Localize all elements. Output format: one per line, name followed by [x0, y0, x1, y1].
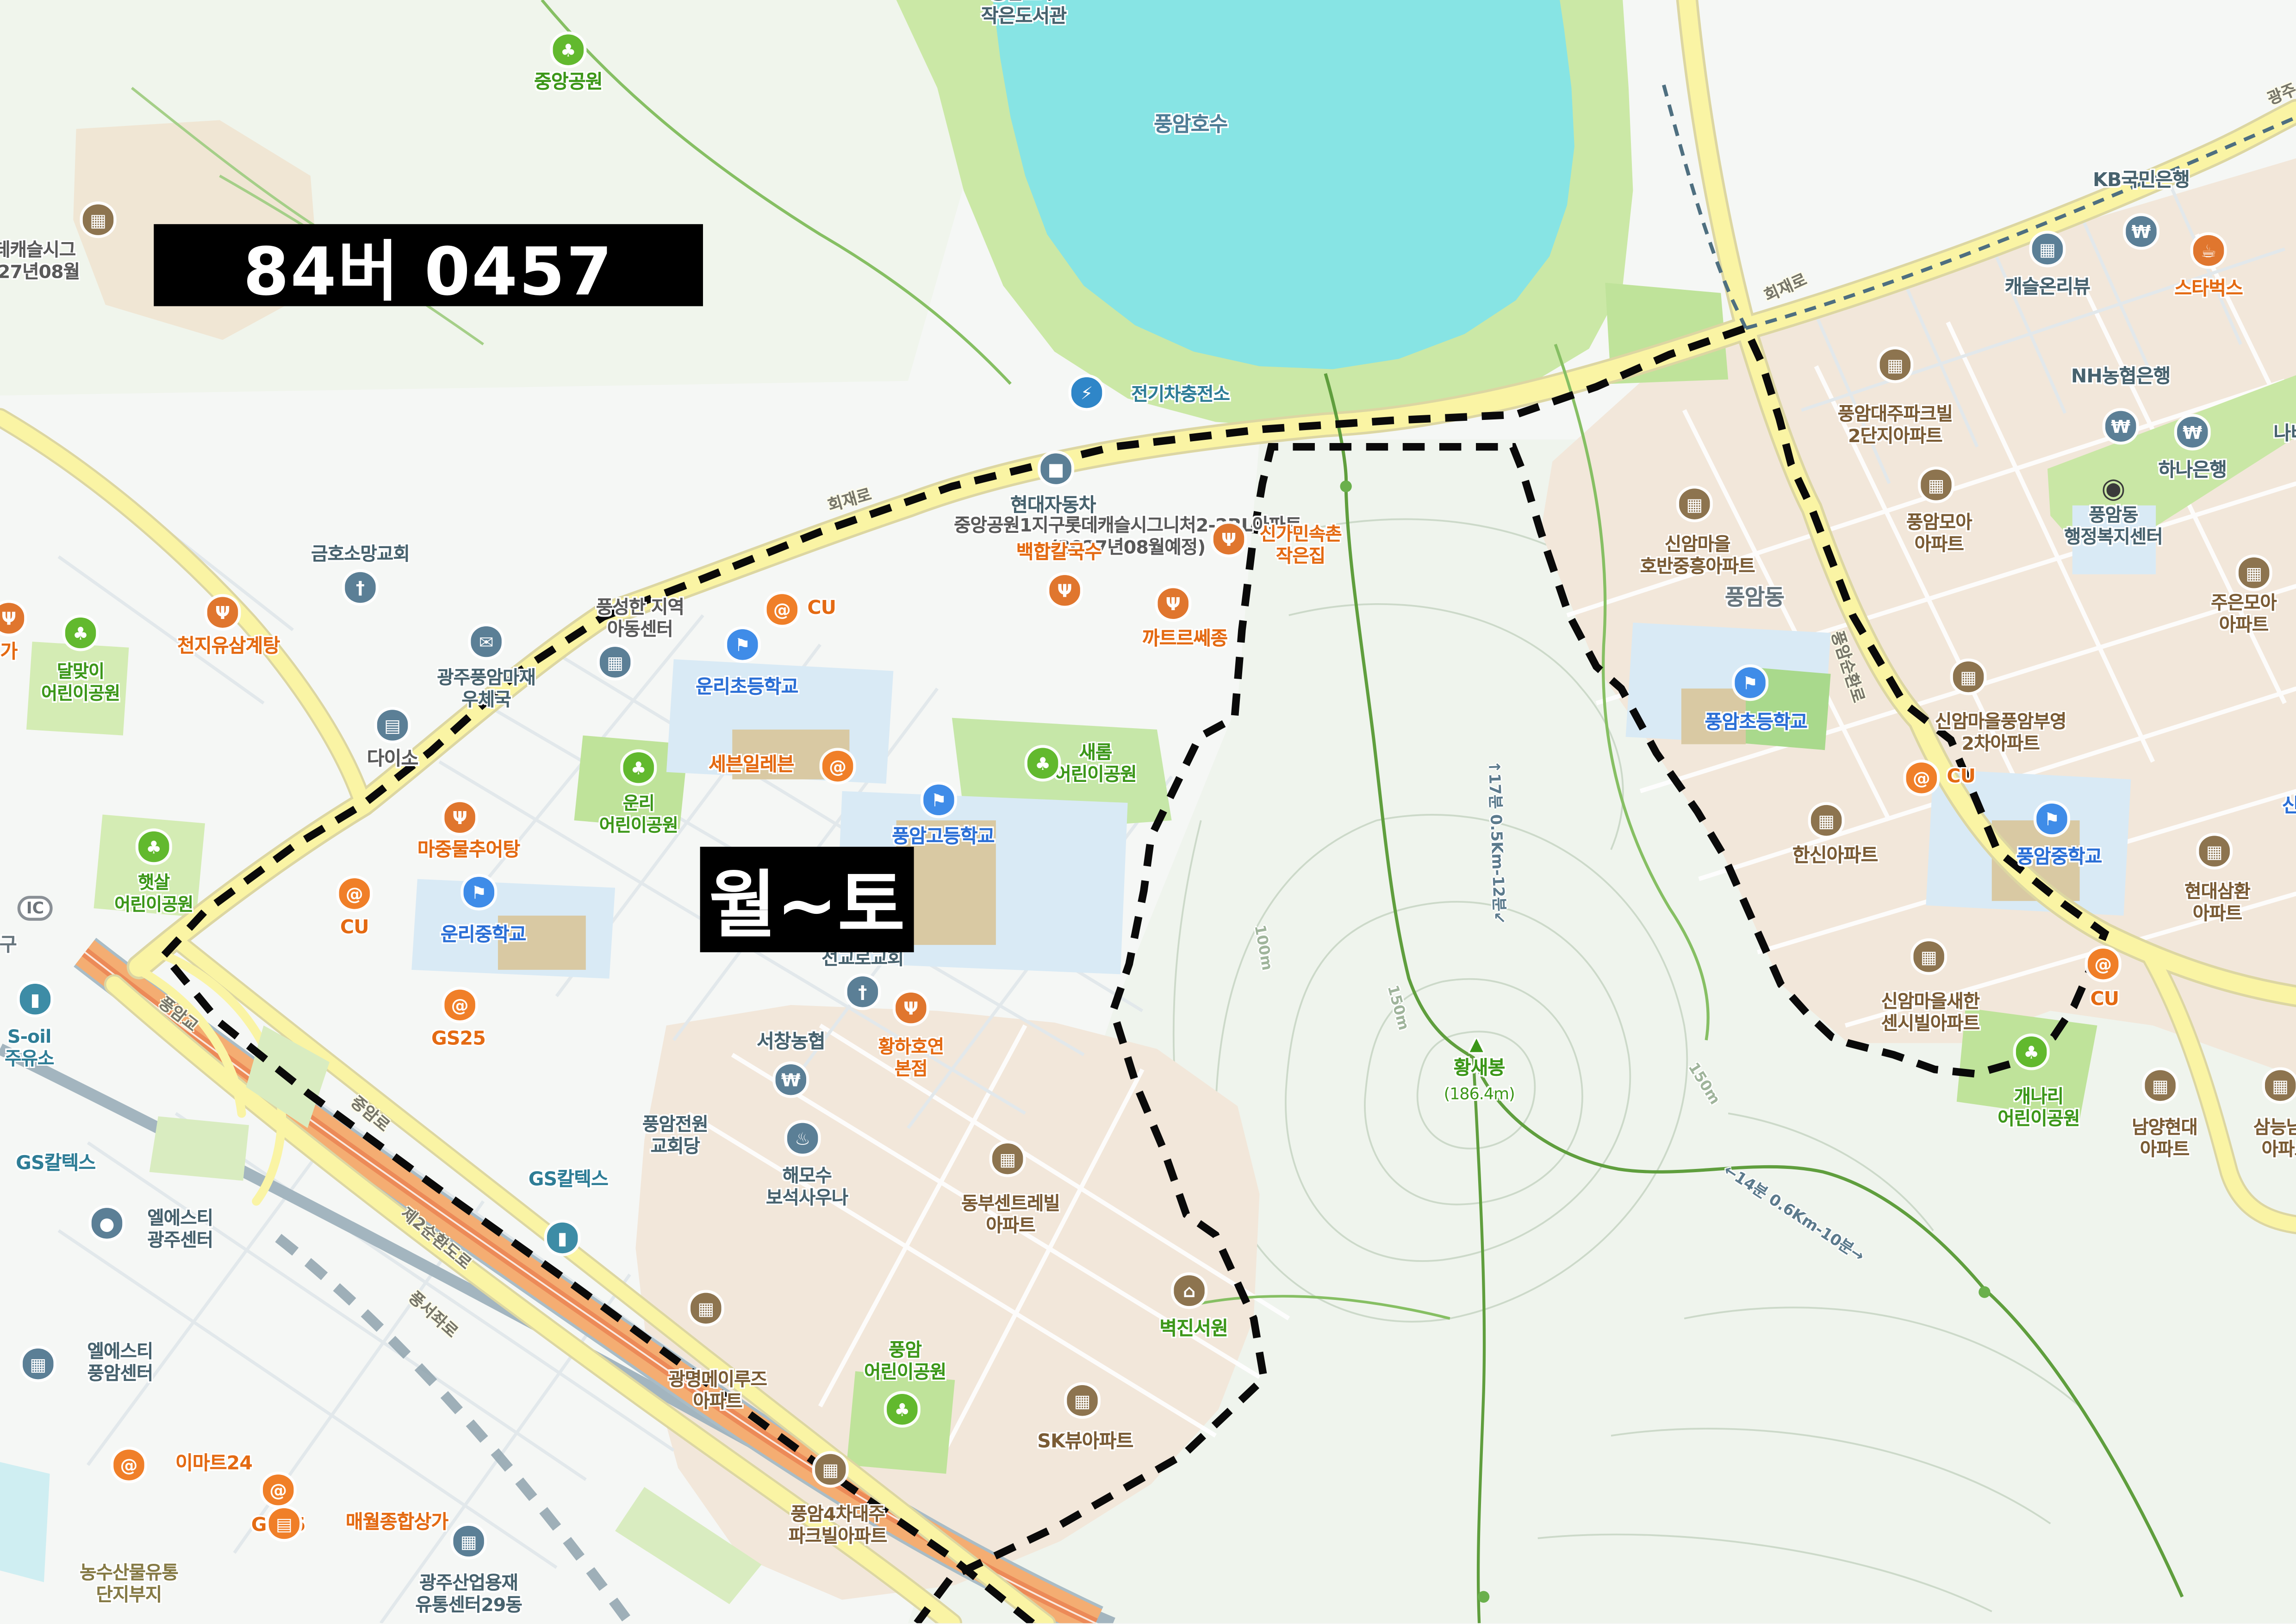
- stream: [0, 1462, 50, 1582]
- map-canvas[interactable]: 풍암호수 작은도서관♣중앙공원풍암호수⚡전기차충전소₩KB국민은행▦캐슬온리뷰☕…: [0, 0, 2296, 1623]
- haessal-green: [94, 814, 205, 917]
- pungam-child-green: [846, 1371, 955, 1474]
- ic-marker: IC: [18, 896, 53, 921]
- schedule-overlay: 월~토: [700, 847, 914, 952]
- dalmaji-green: [26, 642, 129, 736]
- vehicle-plate-overlay: 84버 0457: [154, 224, 703, 306]
- gaenari-green: [1957, 1008, 2097, 1119]
- interchange-green-1: [149, 1116, 249, 1181]
